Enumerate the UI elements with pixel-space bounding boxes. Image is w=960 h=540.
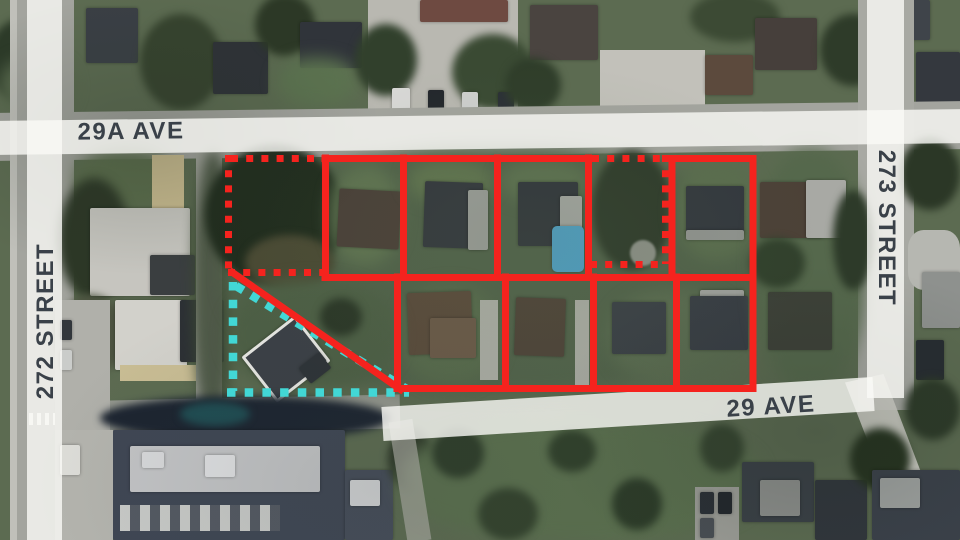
diagonal-boundary: [233, 273, 401, 390]
aerial-map: 29A AVE 272 STREET 273 STREET 29 AVE: [0, 0, 960, 540]
lot-outline-overlay: [0, 0, 960, 540]
red-dashed-parcel-middle: [590, 155, 666, 265]
red-dashed-parcel-left: [228, 155, 327, 273]
